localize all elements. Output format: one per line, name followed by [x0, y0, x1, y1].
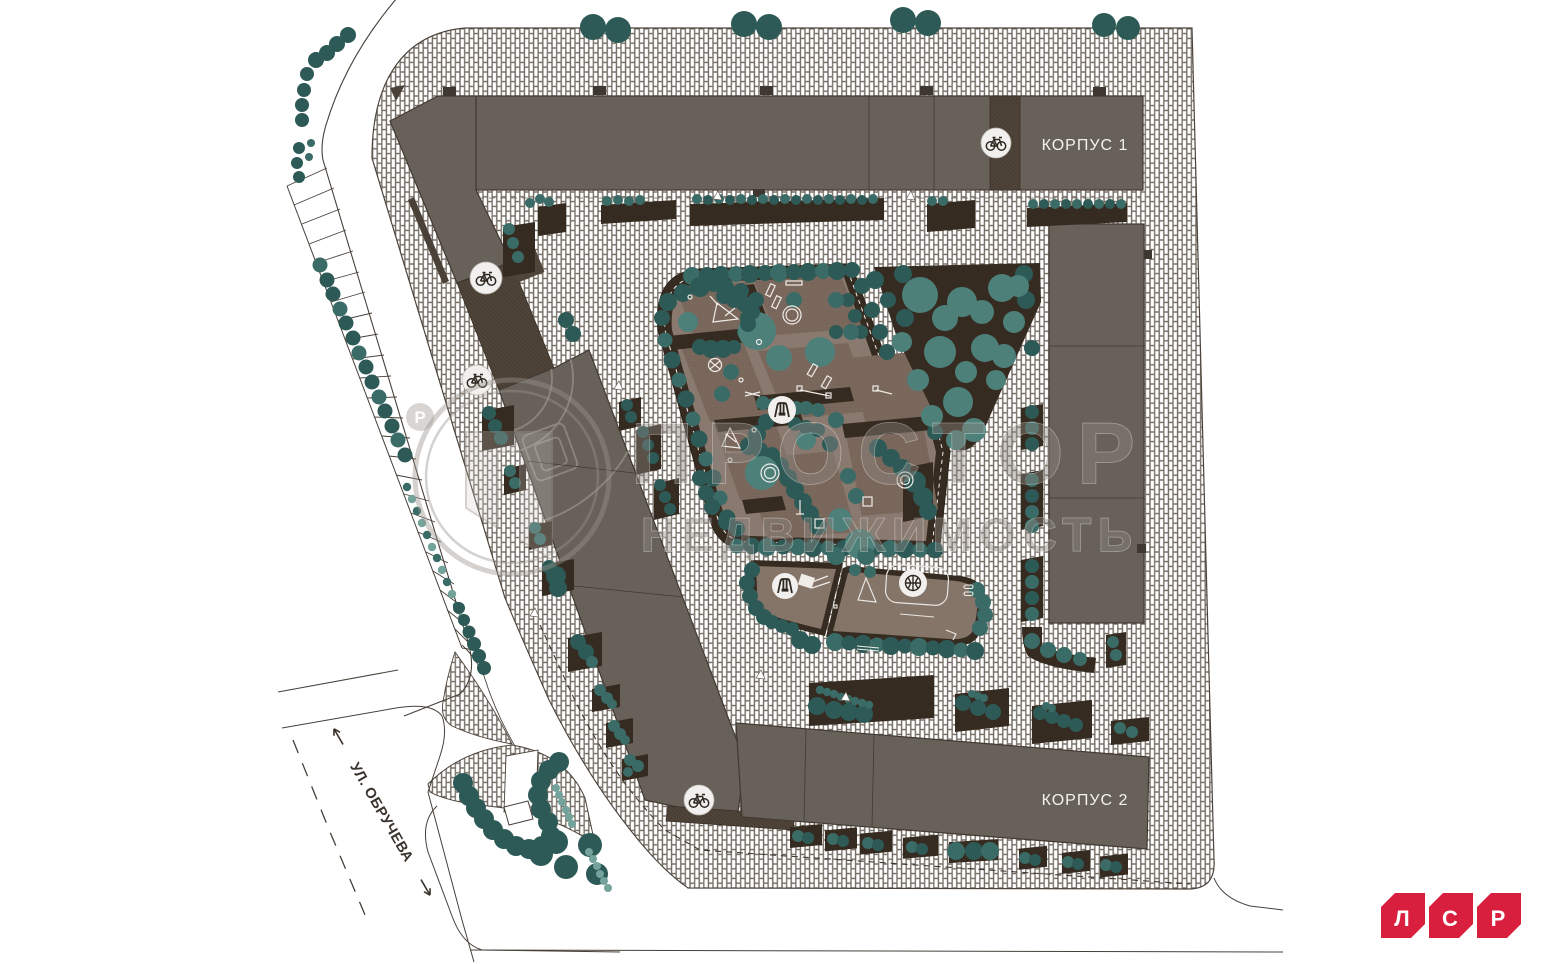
svg-text:С: С	[1442, 906, 1458, 931]
svg-text:Л: Л	[1394, 906, 1409, 931]
svg-text:КОРПУС 2: КОРПУС 2	[1042, 792, 1129, 809]
svg-text:ПРОСТОР: ПРОСТОР	[631, 406, 1149, 502]
svg-text:КОРПУС 1: КОРПУС 1	[1042, 137, 1129, 154]
svg-text:НЕДВИЖИМОСТЬ: НЕДВИЖИМОСТЬ	[641, 508, 1139, 561]
svg-text:Р: Р	[1491, 906, 1506, 931]
svg-text:P: P	[414, 408, 425, 427]
